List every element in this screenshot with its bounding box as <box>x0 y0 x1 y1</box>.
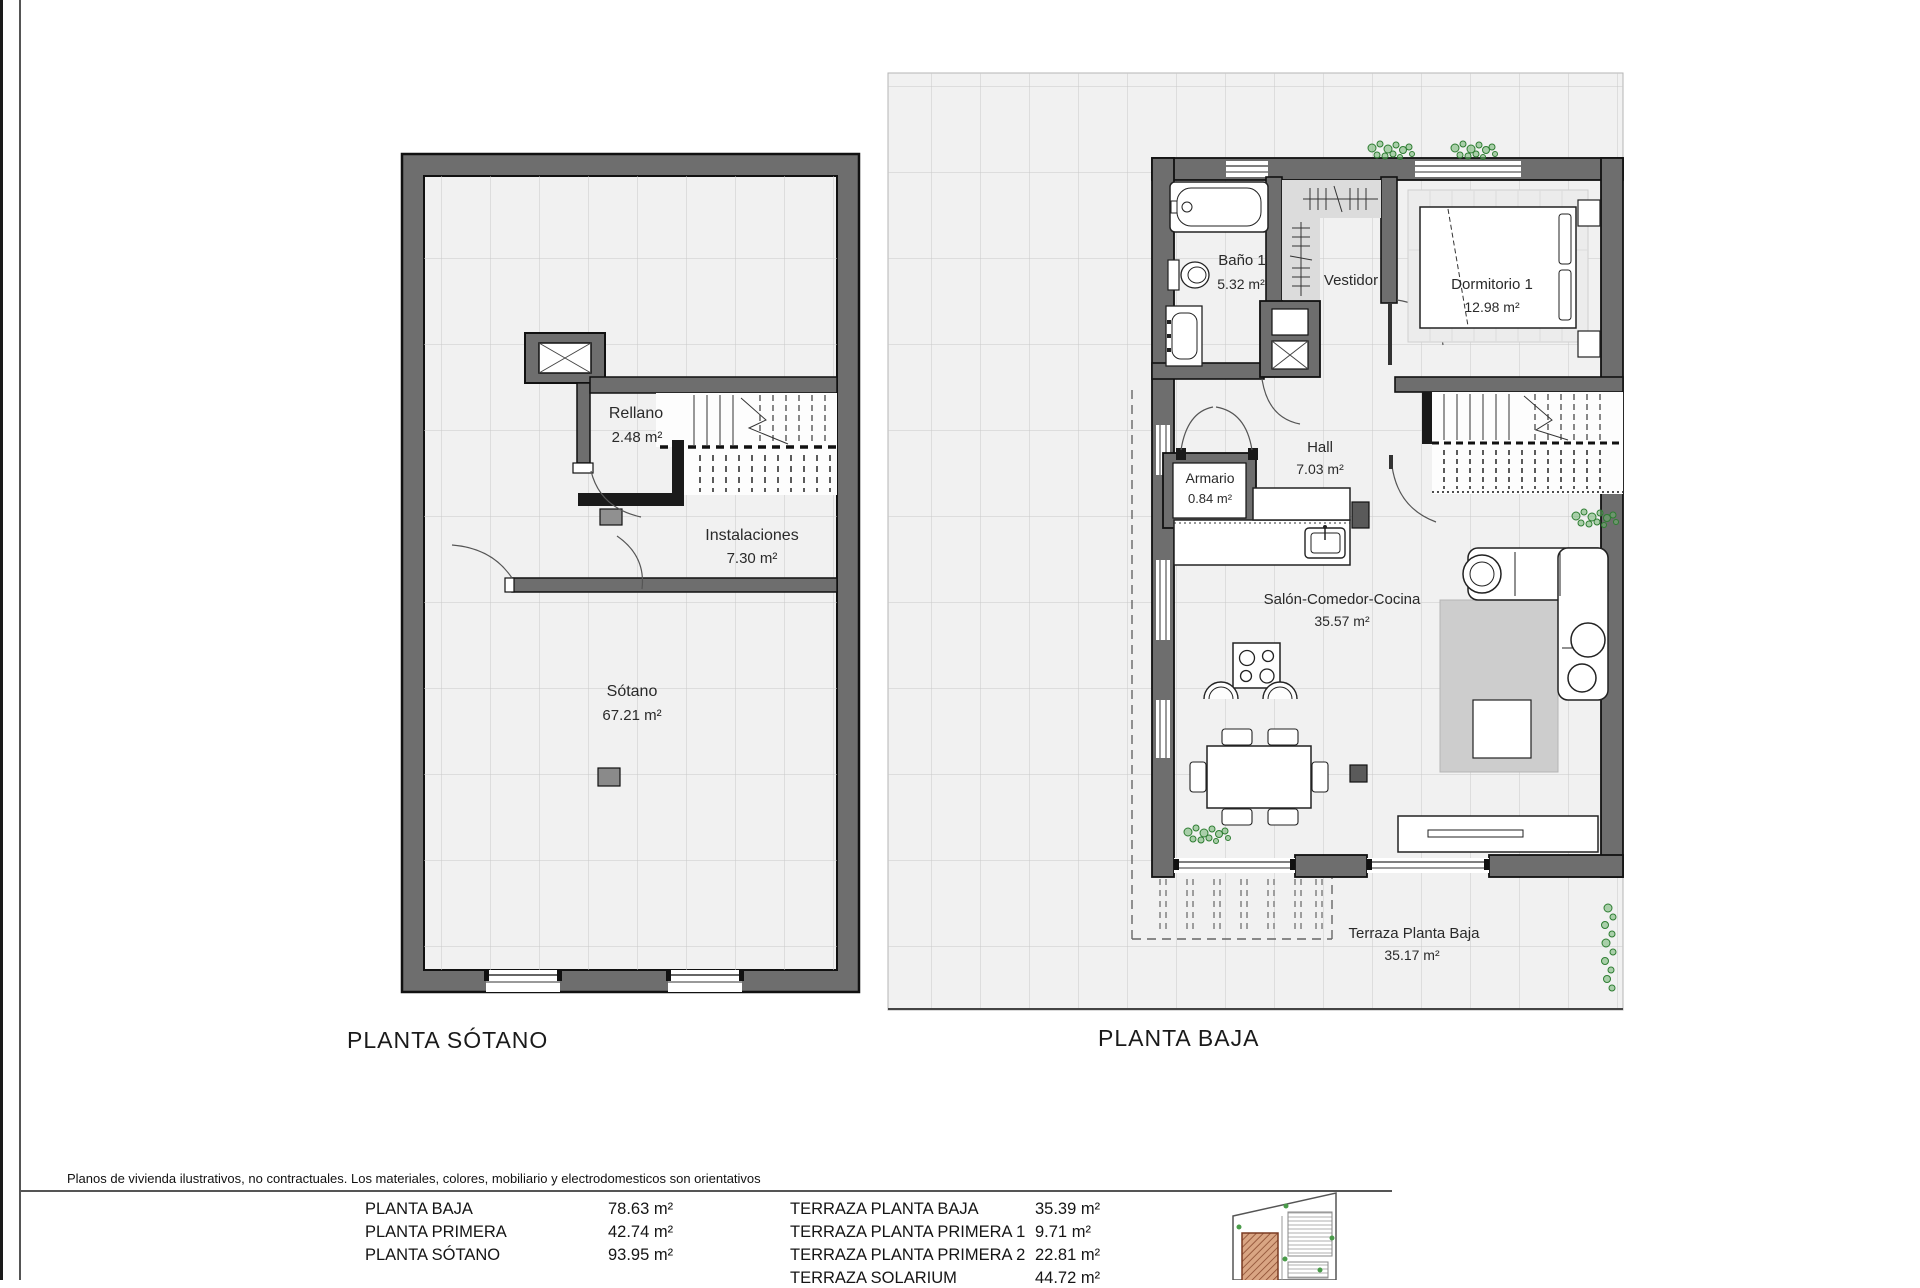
sotano-plan <box>402 154 859 992</box>
elevator-icon <box>525 333 605 383</box>
room-area-sotano: 67.21 m² <box>602 708 661 724</box>
coffee-table-icon <box>1473 700 1531 758</box>
room-area-instalaciones: 7.30 m² <box>727 551 778 567</box>
legend-label-terraza-primera-2: TERRAZA PLANTA PRIMERA 2 <box>790 1246 1025 1265</box>
legend-label-terraza-solarium: TERRAZA SOLARIUM <box>790 1269 957 1288</box>
column <box>598 768 620 786</box>
legend-value-planta-baja: 78.63 m² <box>608 1200 673 1219</box>
floorplan-drawing <box>0 0 1920 1280</box>
site-plan-thumbnail <box>1233 1193 1336 1280</box>
door-jamb <box>505 578 514 592</box>
column <box>1350 765 1367 782</box>
stairs-icon <box>1422 392 1623 494</box>
sliding-panel <box>1388 303 1392 365</box>
room-label-dormitorio: Dormitorio 1 <box>1451 277 1533 293</box>
room-area-rellano: 2.48 m² <box>612 430 663 446</box>
wall <box>590 377 837 393</box>
wall <box>577 383 590 463</box>
sheet-edge <box>0 0 3 1280</box>
baja-plan <box>888 73 1623 1010</box>
baja-plan-title: PLANTA BAJA <box>1098 1025 1259 1052</box>
room-label-armario: Armario <box>1185 471 1234 486</box>
tv-cabinet-icon <box>1398 816 1598 852</box>
bathtub-icon <box>1170 182 1268 232</box>
legend-label-planta-sotano: PLANTA SÓTANO <box>365 1246 500 1265</box>
legend-value-terraza-primera-2: 22.81 m² <box>1035 1246 1100 1265</box>
room-label-bano: Baño 1 <box>1218 253 1266 269</box>
room-area-dormitorio: 12.98 m² <box>1464 300 1519 315</box>
disclaimer-text: Planos de vivienda ilustrativos, no cont… <box>67 1171 761 1186</box>
legend-label-planta-primera: PLANTA PRIMERA <box>365 1223 507 1242</box>
wall <box>578 493 684 506</box>
column <box>1352 502 1369 528</box>
room-label-instalaciones: Instalaciones <box>705 528 798 545</box>
basement-window <box>666 970 744 992</box>
bed-icon <box>1408 190 1600 357</box>
legend-value-terraza-baja: 35.39 m² <box>1035 1200 1100 1219</box>
room-label-terraza: Terraza Planta Baja <box>1349 926 1480 942</box>
room-area-hall: 7.03 m² <box>1296 462 1343 477</box>
toilet-icon <box>1168 260 1209 290</box>
room-label-salon: Salón-Comedor-Cocina <box>1264 592 1421 608</box>
wall <box>512 578 837 592</box>
room-label-vestidor: Vestidor <box>1324 273 1378 289</box>
room-area-salon: 35.57 m² <box>1314 614 1369 629</box>
elevator-icon <box>1260 301 1320 377</box>
sotano-plan-title: PLANTA SÓTANO <box>347 1027 548 1054</box>
basement-window <box>484 970 562 992</box>
floorplan-sheet: { "sheet": { "disclaimer": "Planos de vi… <box>0 0 1920 1280</box>
legend-value-planta-primera: 42.74 m² <box>608 1223 673 1242</box>
room-area-terraza: 35.17 m² <box>1384 948 1439 963</box>
legend-label-terraza-baja: TERRAZA PLANTA BAJA <box>790 1200 979 1219</box>
door-jamb <box>573 463 593 473</box>
legend-value-planta-sotano: 93.95 m² <box>608 1246 673 1265</box>
room-area-armario: 0.84 m² <box>1188 492 1232 506</box>
room-label-rellano: Rellano <box>609 406 663 423</box>
legend-value-terraza-solarium: 44.72 m² <box>1035 1269 1100 1288</box>
duct <box>600 509 622 525</box>
room-label-hall: Hall <box>1307 440 1333 456</box>
cooktop-icon <box>1233 643 1280 688</box>
sink-icon <box>1166 306 1202 366</box>
room-label-sotano: Sótano <box>607 684 658 701</box>
highlighted-unit <box>1242 1233 1278 1280</box>
door-leaf <box>1389 455 1393 469</box>
legend-label-terraza-primera-1: TERRAZA PLANTA PRIMERA 1 <box>790 1223 1025 1242</box>
legend-value-terraza-primera-1: 9.71 m² <box>1035 1223 1091 1242</box>
legend-label-planta-baja: PLANTA BAJA <box>365 1200 473 1219</box>
room-area-bano: 5.32 m² <box>1217 277 1264 292</box>
